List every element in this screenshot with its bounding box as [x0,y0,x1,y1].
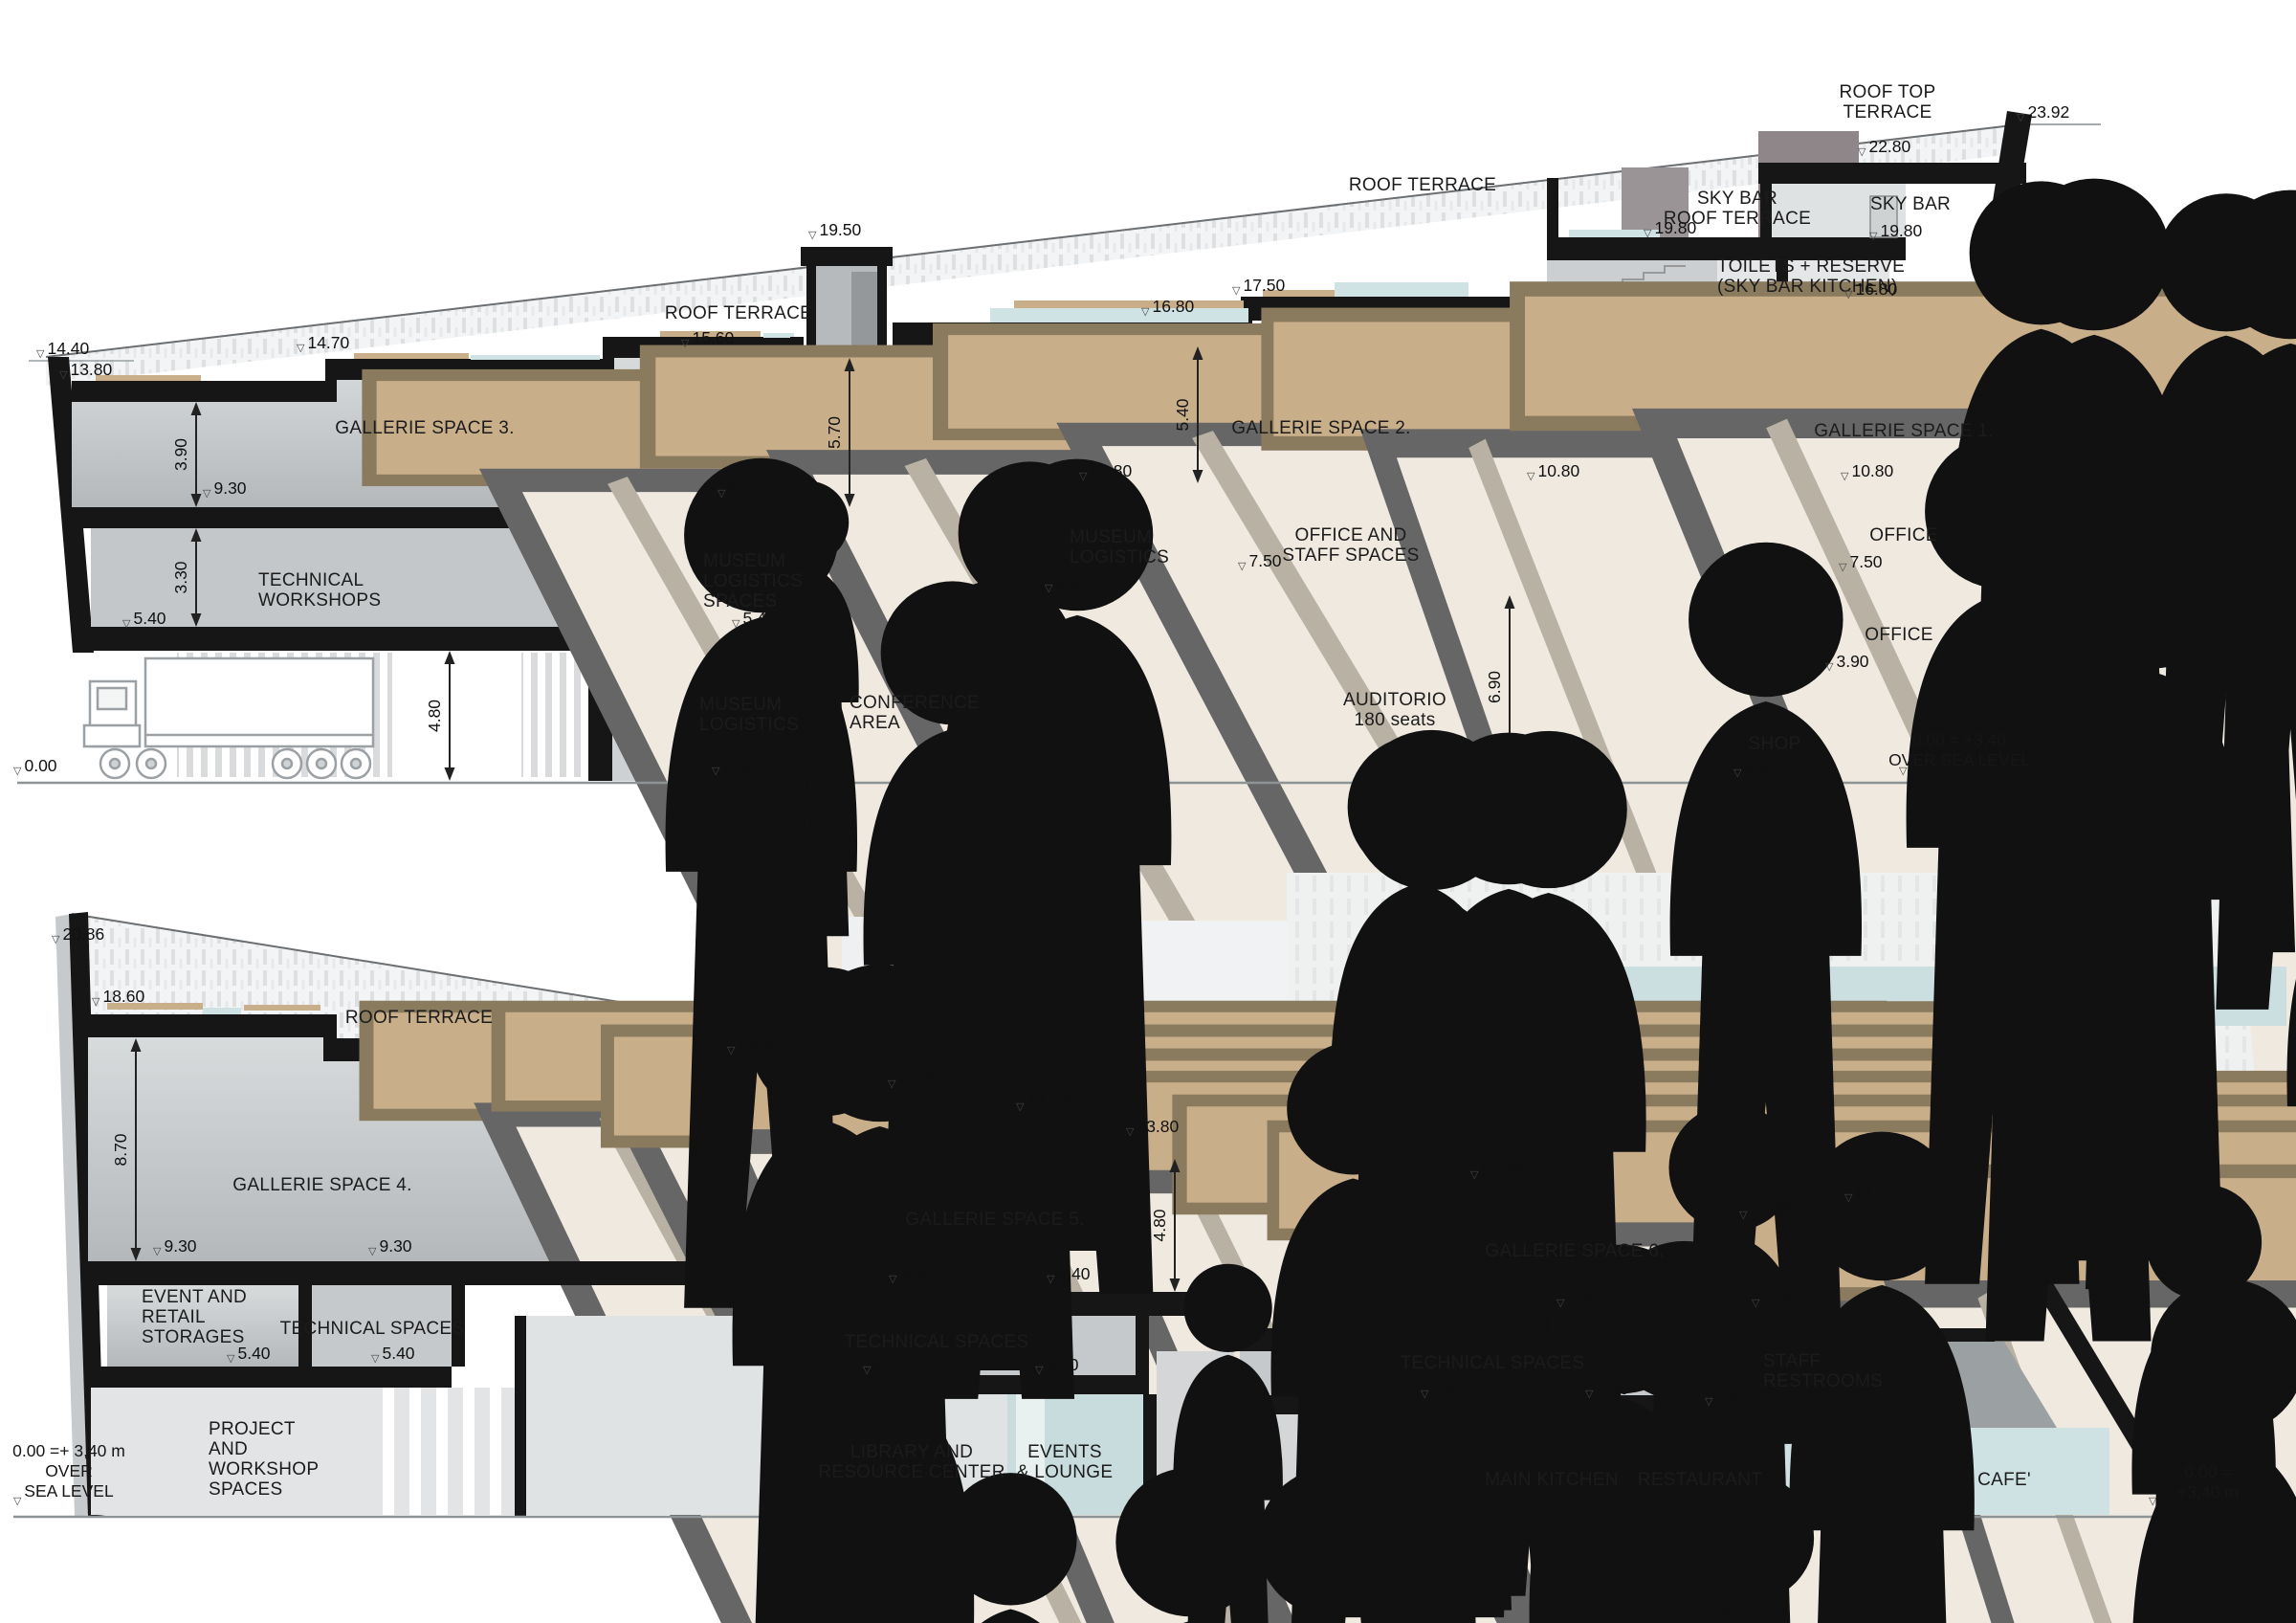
level-triangle-icon: ▽ [1238,558,1246,575]
room-label-roof-top-terrace: ROOF TOPTERRACE [1840,82,1936,122]
elevation-value: 3.90 [1715,1387,1748,1406]
elevation-marker-8-40: ▽8.40 [889,1265,933,1285]
elevation-marker-5-40: ▽5.40 [227,1345,271,1365]
level-triangle-icon: ▽ [297,340,304,357]
datum-note-line: 0.00 = +3,40 [1888,730,2030,750]
level-triangle-icon: ▽ [1644,225,1651,242]
elevation-marker-9-30: ▽9.30 [153,1237,197,1257]
elevation-marker-10-80: ▽10.80 [1527,462,1579,482]
room-label-technical-spaces: TECHNICAL SPACES [845,1332,1029,1352]
level-triangle-icon: ▽ [36,345,44,363]
room-label-line: AND [209,1439,319,1459]
elevation-marker-5-10: ▽5.10 [1035,1356,1079,1376]
datum-note-line: OVER SEA LEVEL [1888,750,2030,770]
datum-note-line: +3,40 m [2177,1482,2239,1502]
level-triangle-icon: ▽ [1844,1189,1852,1207]
elevation-marker-19-80: ▽19.80 [1644,219,1696,239]
room-label-gallerie-space-3: GALLERIE SPACE 3. [335,418,514,438]
elevation-marker-11-42: ▽11.42 [1844,1184,1896,1204]
room-label-line: EVENTS [1017,1442,1114,1462]
room-label-line: STAFF SPACES [1282,545,1419,566]
elevation-marker-10-80: ▽10.80 [1841,462,1893,482]
elevation-value: 13.80 [1137,1117,1179,1136]
elevation-marker-14-70: ▽14.70 [297,334,349,354]
level-triangle-icon: ▽ [808,227,816,244]
level-triangle-icon: ▽ [1421,1386,1428,1403]
elevation-value: 22.80 [1868,137,1910,156]
level-triangle-icon: ▽ [368,1243,376,1260]
elevation-marker-18-60: ▽18.60 [92,988,144,1008]
level-triangle-icon: ▽ [681,335,689,352]
level-triangle-icon: ▽ [1126,1123,1134,1141]
elevation-value: 16.80 [1855,279,1897,299]
level-triangle-icon: ▽ [1733,765,1741,782]
datum-note-line: OVER [12,1461,125,1481]
elevation-marker-23-92: ▽23.92 [2017,103,2069,123]
elevation-value: 4.20 [1431,1379,1464,1398]
elevation-marker-13-80: ▽13.80 [1126,1118,1179,1138]
elevation-marker-3-90: ▽3.90 [1705,1388,1749,1408]
level-triangle-icon: ▽ [13,763,21,780]
room-label-cafe: CAFE' [1977,1470,2031,1490]
datum-note-line: SEA LEVEL [12,1481,125,1501]
room-label-conference-area: CONFERENCEAREA [850,693,980,733]
elevation-value: 19.50 [819,220,861,239]
elevation-marker-5-40: ▽5.40 [732,610,776,630]
room-label-project-and-workshop-spaces: PROJECTANDWORKSHOPSPACES [209,1419,319,1500]
room-label-gallerie-space-1: GALLERIE SPACE 1. [1814,421,1993,441]
elevation-value: 15.60 [898,1069,940,1088]
room-label-line: TECHNICAL SPACES [1401,1353,1585,1373]
room-label-line: TECHNICAL SPACES [280,1319,465,1339]
elevation-value: 10.80 [1537,461,1579,480]
elevation-marker-16-80: ▽16.80 [1141,298,1194,318]
elevation-value: 16.80 [1152,297,1194,316]
room-label-line: & LOUNGE [1017,1462,1114,1482]
room-label-line: EVENT AND [142,1287,247,1307]
elevation-value: 5.40 [237,1344,270,1363]
elevation-marker-12-30: ▽12.30 [1470,1161,1523,1181]
level-triangle-icon: ▽ [1047,1271,1054,1288]
datum-note: 0.00 =+3,40 m [2177,1462,2239,1502]
room-label-roof-terrace: ROOF TERRACE [345,1008,493,1028]
elevation-marker-8-40: ▽8.40 [1047,1265,1091,1285]
level-triangle-icon: ▽ [1825,658,1833,676]
room-label-roof-terrace: ROOF TERRACE [1349,175,1496,195]
elevation-marker-16-80: ▽16.80 [1844,280,1897,300]
elevation-value: 12.30 [1481,1160,1523,1179]
elevation-marker-7-50: ▽7.50 [1839,553,1883,573]
elevation-value: 5.10 [873,1355,906,1374]
room-label-office: OFFICE [1865,625,1932,645]
elevation-value: 7.50 [1567,1288,1600,1307]
elevation-value: 16.80 [738,1035,780,1055]
room-label-events-lounge: EVENTS& LOUNGE [1017,1442,1114,1482]
level-triangle-icon: ▽ [1079,468,1087,485]
room-label-technical-workshops: TECHNICALWORKSHOPS [258,570,381,611]
datum-note-line: 0.00 = [2177,1462,2239,1482]
room-label-line: TECHNICAL [258,570,381,590]
level-triangle-icon: ▽ [1016,1099,1024,1116]
elevation-value: 15.60 [692,328,734,347]
elevation-marker-0-00: ▽0.00 [1733,759,1777,779]
room-label-museum-logistics: MUSEUMLOGISTICS [699,695,799,735]
elevation-marker-10-80: ▽10.80 [1079,462,1132,482]
elevation-marker-3-90: ▽3.90 [1825,653,1869,673]
level-triangle-icon: ▽ [889,1271,896,1288]
elevation-value: 9.30 [379,1236,411,1256]
room-label-line: 180 seats [1343,710,1446,730]
level-triangle-icon: ▽ [122,615,130,633]
level-triangle-icon: ▽ [1841,468,1848,485]
datum-note: 0.00 =+ 3,40 mOVERSEA LEVEL [12,1441,125,1501]
level-triangle-icon: ▽ [1585,1386,1593,1403]
room-label-line: LOGISTICS [1070,547,1169,567]
room-label-line: AREA [850,713,980,733]
room-label-event-and-retail-storages: EVENT ANDRETAILSTORAGES [142,1287,247,1347]
elevation-marker-17-50: ▽17.50 [1232,277,1285,297]
elevation-value: 13.80 [70,360,112,379]
level-triangle-icon: ▽ [1899,765,1907,777]
elevation-marker-20-86: ▽20.86 [52,925,104,945]
room-label-line: GALLERIE SPACE 4. [232,1175,411,1195]
elevation-marker-0-00: ▽0.00 [13,757,57,777]
room-label-roof-terrace: ROOF TERRACE [665,303,812,323]
room-label-line: GALLERIE SPACE 5. [905,1210,1084,1230]
room-label-line: CAFE' [1977,1470,2031,1490]
elevation-value: 18.60 [102,987,144,1006]
elevation-value: 14.70 [307,333,349,352]
elevation-value: 8.40 [899,1264,932,1283]
elevation-marker-7-50: ▽7.50 [1556,1289,1601,1309]
architectural-sections-canvas: 3.905.703.304.805.406.908.704.802.704.20… [0,0,2296,1623]
room-label-auditorio-180-seats: AUDITORIO180 seats [1343,690,1446,730]
elevation-value: 14.70 [1027,1092,1069,1111]
room-label-line: WORKSHOPS [258,590,381,611]
elevation-value: 11.42 [1855,1183,1896,1202]
elevation-value: 3.90 [1836,652,1868,671]
elevation-marker-5-10: ▽5.10 [863,1356,907,1376]
room-label-line: TOILETS + RESERVE [1717,256,1905,277]
room-label-shop: SHOP [1748,734,1800,754]
level-triangle-icon: ▽ [1527,468,1534,485]
level-triangle-icon: ▽ [2149,1495,2156,1507]
room-label-line: MAIN KITCHEN [1485,1470,1619,1490]
elevation-value: 7.50 [1248,551,1281,570]
elevation-marker-15-60: ▽15.60 [681,329,734,349]
elevation-value: 20.86 [62,924,104,944]
elevation-value: 5.40 [382,1344,414,1363]
level-triangle-icon: ▽ [1739,1207,1747,1224]
room-label-line: PROJECT [209,1419,319,1439]
elevation-marker-14-40: ▽14.40 [36,340,89,360]
level-triangle-icon: ▽ [1705,1393,1712,1411]
room-label-staff-restrooms: STAFFRESTROOMS [1763,1351,1883,1391]
room-label-main-kitchen: MAIN KITCHEN [1485,1470,1619,1490]
level-triangle-icon: ▽ [92,993,99,1011]
room-label-line: LOGISTICS [703,571,803,591]
elevation-value: 9.30 [213,478,246,498]
elevation-marker-19-80: ▽19.80 [1869,222,1922,242]
room-label-restaurant: RESTAURANT [1638,1470,1762,1490]
level-triangle-icon: ▽ [1232,282,1240,300]
level-triangle-icon: ▽ [717,485,725,502]
elevation-value: 0.00 [722,756,755,775]
room-label-line: LOGISTICS [699,715,799,735]
room-label-line: RETAIL [142,1307,247,1327]
elevation-marker-5-40: ▽5.40 [371,1345,415,1365]
level-triangle-icon: ▽ [888,1076,895,1093]
room-label-line: LIBRARY AND [818,1442,1005,1462]
room-label-sky-bar: SKY BAR [1870,194,1951,214]
elevation-value: 0.00 [1744,758,1777,777]
level-triangle-icon: ▽ [371,1350,379,1367]
room-label-line: GALLERIE SPACE 3. [335,418,514,438]
elevation-value: 5.10 [1046,1355,1078,1374]
elevation-value: 6.60 [1055,573,1088,592]
room-label-line: ROOF TOP [1840,82,1936,102]
elevation-value: 7.50 [1849,552,1882,571]
elevation-value: 10.80 [1851,461,1893,480]
elevation-marker-13-80: ▽13.80 [59,361,112,381]
datum-note-line: 0.00 =+ 3,40 m [12,1441,125,1461]
room-label-museum-logistics: MUSEUMLOGISTICS [1070,527,1169,567]
level-triangle-icon: ▽ [52,931,59,948]
level-triangle-icon: ▽ [732,615,740,633]
room-label-line: AUDITORIO [1343,690,1446,710]
level-triangle-icon: ▽ [1839,559,1846,576]
elevation-value: 4.20 [1596,1379,1628,1398]
room-label-line: TERRACE [1840,102,1936,122]
elevation-marker-6-60: ▽6.60 [1045,574,1089,594]
room-label-line: GALLERIE SPACE 2. [1231,418,1410,438]
elevation-value: 9.30 [164,1236,196,1256]
elevation-marker-4-20: ▽4.20 [1585,1380,1629,1400]
elevation-value: 19.80 [1654,218,1696,237]
elevation-marker-0-00: ▽0.00 [712,757,756,777]
room-label-line: OFFICE [1865,625,1932,645]
level-triangle-icon: ▽ [727,1042,735,1059]
elevation-marker-9-30: ▽9.30 [717,479,762,500]
room-label-line: SHOP [1748,734,1800,754]
room-label-line: TECHNICAL SPACES [845,1332,1029,1352]
level-triangle-icon: ▽ [863,1362,871,1379]
room-label-line: WORKSHOP [209,1459,319,1479]
elevation-value: 8.40 [1057,1264,1090,1283]
elevation-value: 10.80 [1090,461,1132,480]
room-label-line: ROOF TERRACE [1349,175,1496,195]
room-label-line: RESTAURANT [1638,1470,1762,1490]
room-label-line: SKY BAR [1870,194,1951,214]
room-label-line: SPACES [209,1479,319,1500]
level-triangle-icon: ▽ [59,367,67,384]
room-label-line: CONFERENCE [850,693,980,713]
level-triangle-icon: ▽ [2017,109,2024,126]
elevation-value: 5.40 [133,609,166,628]
room-label-office-and-staff-spaces: OFFICE ANDSTAFF SPACES [1282,525,1419,566]
room-label-line: ROOF TERRACE [345,1008,493,1028]
level-triangle-icon: ▽ [1844,286,1852,303]
elevation-marker-19-50: ▽19.50 [808,221,861,241]
level-triangle-icon: ▽ [1869,228,1877,245]
elevation-value: 19.80 [1880,221,1922,240]
elevation-marker-9-30: ▽9.30 [368,1237,412,1257]
labels-overlay: GALLERIE SPACE 3.ROOF TERRACEGALLERIE SP… [0,0,2296,1623]
level-triangle-icon: ▽ [1045,580,1052,597]
room-label-line: SKY BAR [1664,189,1811,209]
elevation-marker-10-80: ▽10.80 [1739,1201,1792,1221]
level-triangle-icon: ▽ [227,1350,234,1367]
room-label-line: GALLERIE SPACE 1. [1814,421,1993,441]
room-label-museum-logistics-spaces: MUSEUMLOGISTICSSPACES [703,551,803,611]
room-label-line: ROOF TERRACE [665,303,812,323]
elevation-marker-9-30: ▽9.30 [203,479,247,500]
elevation-value: 14.40 [47,339,89,358]
elevation-value: 0.00 [24,756,56,775]
room-label-technical-spaces: TECHNICAL SPACES [1401,1353,1585,1373]
room-label-line: STAFF [1763,1351,1883,1371]
level-triangle-icon: ▽ [1556,1295,1564,1312]
room-label-line: OFFICE AND [1282,525,1419,545]
datum-note: 0.00 = +3,40OVER SEA LEVEL [1888,730,2030,770]
room-label-technical-spaces: TECHNICAL SPACES [280,1319,465,1339]
room-label-line: RESTROOMS [1763,1371,1883,1391]
elevation-marker-7-50: ▽7.50 [1238,552,1282,572]
room-label-gallerie-space-4: GALLERIE SPACE 4. [232,1175,411,1195]
room-label-line: GALLERIE SPACE 6. [1485,1241,1664,1261]
elevation-marker-5-40: ▽5.40 [122,610,166,630]
elevation-marker-15-60: ▽15.60 [888,1070,940,1090]
elevation-marker-22-80: ▽22.80 [1858,138,1910,158]
room-label-line: MUSEUM [1070,527,1169,547]
room-label-office: OFFICE [1869,525,1937,545]
level-triangle-icon: ▽ [13,1495,21,1507]
room-label-gallerie-space-6: GALLERIE SPACE 6. [1485,1241,1664,1261]
level-triangle-icon: ▽ [712,763,719,780]
level-triangle-icon: ▽ [1470,1167,1478,1184]
level-triangle-icon: ▽ [1141,303,1149,321]
room-label-library-and-resource-center: LIBRARY ANDRESOURCE CENTER [818,1442,1005,1482]
level-triangle-icon: ▽ [203,485,210,502]
level-triangle-icon: ▽ [153,1243,161,1260]
elevation-value: 17.50 [1243,276,1285,295]
level-triangle-icon: ▽ [1035,1362,1043,1379]
elevation-value: 7.50 [1762,1288,1795,1307]
elevation-value: 5.40 [742,609,775,628]
level-triangle-icon: ▽ [1858,144,1865,161]
level-triangle-icon: ▽ [1752,1295,1759,1312]
room-label-line: MUSEUM [699,695,799,715]
room-label-gallerie-space-5: GALLERIE SPACE 5. [905,1210,1084,1230]
room-label-line: MUSEUM [703,551,803,571]
elevation-marker-16-80: ▽16.80 [727,1036,780,1056]
elevation-marker-7-50: ▽7.50 [1752,1289,1796,1309]
elevation-marker-14-70: ▽14.70 [1016,1093,1069,1113]
room-label-line: RESOURCE CENTER [818,1462,1005,1482]
elevation-marker-4-20: ▽4.20 [1421,1380,1465,1400]
room-label-line: OFFICE [1869,525,1937,545]
room-label-gallerie-space-2: GALLERIE SPACE 2. [1231,418,1410,438]
elevation-value: 23.92 [2027,102,2069,122]
elevation-value: 10.80 [1750,1200,1792,1219]
elevation-value: 9.30 [728,478,761,498]
